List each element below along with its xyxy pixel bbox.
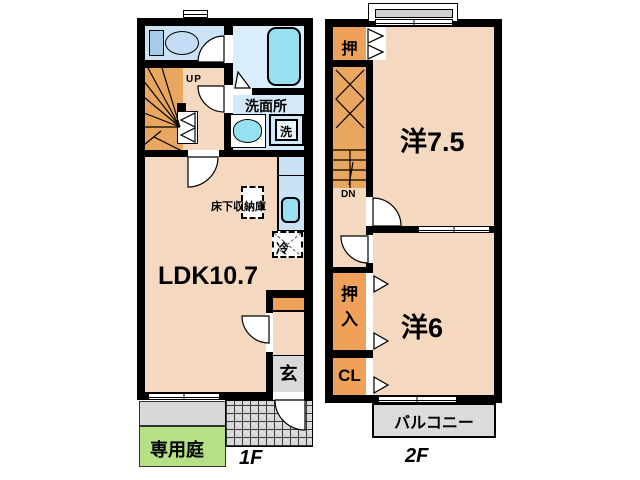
entrance-label: 玄 (273, 360, 304, 386)
washroom-door-gap (224, 85, 233, 113)
floor2-label: 2F (405, 445, 428, 468)
washbasin (233, 119, 262, 143)
window-line (376, 23, 452, 24)
up-label: UP (186, 74, 202, 85)
window-line (184, 14, 207, 15)
kitchen-sink (281, 197, 300, 223)
shoe-cabinet (273, 298, 304, 312)
wall-below-toilet (137, 60, 233, 68)
wall-oshiire-cl (325, 350, 373, 358)
wall-entrance-top (266, 290, 313, 298)
plan-linework (0, 0, 640, 480)
window-line (419, 230, 489, 231)
fridge-label: 冷 (276, 238, 289, 257)
toilet-tank (149, 30, 164, 56)
ldk-label: LDK10.7 (158, 262, 258, 291)
room-divider-window (418, 226, 490, 233)
entrance-door-gap (266, 313, 273, 352)
oshiire-label-char2: 入 (333, 305, 366, 330)
terrace (139, 401, 226, 426)
floor1-label: 1F (239, 447, 262, 470)
room75-top-window (375, 19, 453, 26)
balcony-label: バルコニー (372, 409, 496, 433)
toilet-door-gap (224, 35, 233, 63)
entrance-tiles (225, 400, 313, 447)
oshi-bifold-gap (366, 27, 386, 60)
understair-bifold-door (177, 111, 198, 144)
room75-door-gap (366, 197, 373, 226)
washroom-label: 洗面所 (245, 96, 287, 116)
room6-door-gap (366, 235, 373, 263)
room75-label: 洋7.5 (400, 120, 465, 159)
wall-ldk-top (137, 150, 313, 157)
dn-label: DN (341, 189, 355, 200)
underfloor-storage-label: 床下収納庫 (211, 198, 266, 214)
bath-door-gap (233, 88, 252, 95)
room6-label: 洋6 (401, 306, 443, 345)
oshiire-slider-gap (366, 273, 373, 350)
kitchen-divider (277, 175, 304, 176)
toilet-bowl (165, 31, 199, 55)
wall-stairs-room (366, 60, 373, 197)
room6-south-window (378, 396, 457, 403)
floor-plan: UP 洗面所 洗 床下収納庫 冷 LDK10.7 玄 専用庭 1F 押 洋7.5… (0, 0, 640, 480)
oshiire-label-char1: 押 (333, 280, 366, 305)
window-line (379, 400, 456, 401)
laundry-label: 洗 (280, 123, 292, 140)
ldk-door-gap (188, 150, 219, 157)
bathtub (267, 27, 301, 86)
cl-label: CL (333, 366, 366, 386)
cl-slider-gap (366, 358, 373, 395)
oshi-label: 押 (333, 35, 366, 59)
front-door-gap (273, 392, 304, 400)
ldk-south-window (148, 393, 220, 400)
window-line (149, 397, 219, 398)
room75-bay-window-sash (375, 9, 453, 18)
stairs-2f (333, 67, 366, 188)
toilet-top-window (183, 10, 208, 18)
garden-label: 専用庭 (150, 436, 204, 462)
